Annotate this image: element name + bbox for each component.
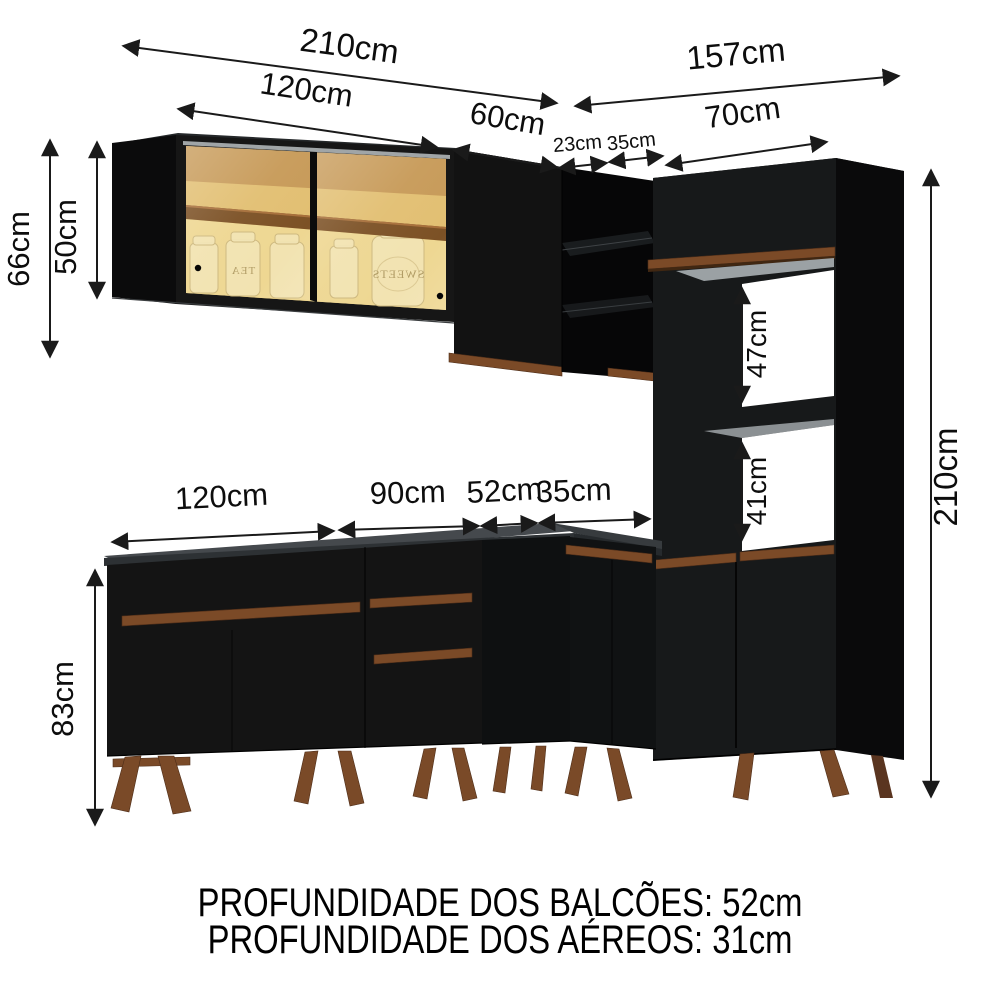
cabinet-leg [338,751,364,806]
dim-label-35-top: 35cm [606,129,657,156]
cabinet-leg [733,753,754,800]
cabinet-leg [294,751,318,804]
cabinet-leg [607,748,632,801]
wall-cabinet-glass: TEA SWEETS [112,133,456,323]
dimension-41-niche: 41cm [741,444,772,539]
dim-label-50-left: 50cm [48,199,83,275]
cabinet-leg [452,748,477,801]
dim-label-70-top: 70cm [702,90,782,135]
wall-corner-shelf-unit [562,167,655,381]
dimension-50-left: 50cm [48,143,97,297]
glass-pane-right [317,152,446,310]
dim-label-41-niche: 41cm [741,457,772,525]
wall-cabinet-60 [449,149,562,376]
kitchen-dimension-diagram: TEA SWEETS [0,0,1000,1000]
dim-label-23-top: 23cm [552,131,603,157]
footer-depth-wall-units: PROFUNDIDADE DOS AÉREOS: 31cm [208,917,793,962]
cabinet-leg [871,755,893,798]
dimension-arrow [340,526,478,530]
dim-label-90-bottom: 90cm [369,474,446,511]
tall-cabinet [648,158,904,761]
dim-label-210-right: 210cm [927,427,964,526]
dimension-157-top: 157cm [576,31,898,106]
base-corner-door [482,536,570,744]
glass-cabinet-left-side [112,135,176,304]
cabinet-leg [820,750,849,797]
dimension-70-top: 70cm [667,90,826,165]
dim-label-52-bottom: 52cm [466,471,544,510]
dim-label-60-top: 60cm [467,95,548,142]
glass-pane-left [186,146,310,300]
dim-label-47-niche: 47cm [741,310,772,378]
dim-label-120-bottom: 120cm [174,477,269,517]
dimension-120-bottom: 120cm [113,477,333,542]
dim-label-157-top: 157cm [685,31,787,77]
wall-cabinet-60-front [454,149,562,372]
footer-notes: PROFUNDIDADE DOS BALCÕES: 52cm PROFUNDID… [198,880,803,962]
glass-door-handle [195,265,201,271]
dim-label-83-left: 83cm [45,661,80,737]
dimension-arrow [610,156,662,162]
diagram-canvas: TEA SWEETS [0,0,1000,1000]
dimension-210-right: 210cm [927,171,964,796]
dimension-52-bottom: 52cm [466,471,544,526]
base-front-right-run [570,537,656,749]
dimension-arrow [540,519,649,523]
glass-pane-divider [310,151,317,302]
corner-shelf-back [562,167,655,380]
dim-label-66-left: 66cm [1,211,36,287]
dimension-120-top: 120cm [179,65,436,147]
glass-door-handle [437,293,443,299]
dim-label-120-top: 120cm [258,65,355,113]
dimension-arrow [667,142,826,165]
cabinet-leg [493,747,511,793]
cabinet-leg [413,748,436,799]
dim-label-35-bottom: 35cm [535,472,612,510]
cabinet-leg [565,747,587,796]
base-front-left-run [107,540,482,756]
dimension-35-bottom: 35cm [535,472,649,523]
dimension-90-bottom: 90cm [340,474,478,530]
dimension-23-top: 23cm [552,131,606,168]
tall-cabinet-right-side [836,158,904,760]
dim-label-210-top: 210cm [298,21,401,71]
dimension-arrow [113,531,333,542]
dimension-arrow [560,163,606,168]
cabinet-legs [111,746,893,814]
dimension-83-left: 83cm [45,571,95,824]
dimension-35-top: 35cm [606,129,662,162]
cabinet-leg [531,746,546,791]
dimension-66-left: 66cm [1,141,50,356]
